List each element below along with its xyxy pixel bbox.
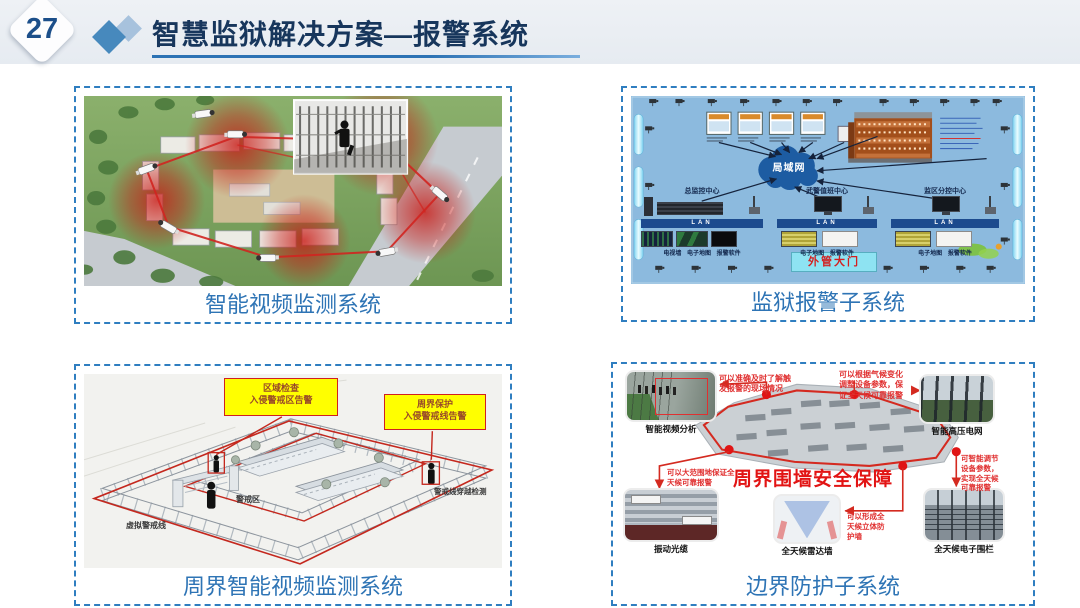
station-devices-label: 电子地图 报警软件	[889, 248, 1001, 257]
monitor-icon	[711, 231, 737, 247]
perimeter-wireframe-illustration: 区域检查 入侵警戒区告警 周界保护 入侵警戒线告警 虚拟警戒线 警戒区 警戒线穿…	[84, 374, 502, 568]
label-chip	[682, 516, 712, 525]
radar-edge	[827, 520, 837, 539]
photo-radar-wall	[775, 496, 839, 542]
prison-aerial-art	[84, 96, 502, 286]
station-hardware	[775, 194, 879, 217]
station-main-control: 总监控中心 LAN 电视墙 电子地图 报警软件	[639, 186, 765, 258]
station-devices-label: 电视墙 电子地图 报警软件	[639, 248, 765, 257]
alert-zone-label: 警戒区	[236, 494, 260, 505]
prison-aerial-illustration	[84, 96, 502, 286]
lan-bus: LAN	[641, 219, 763, 228]
e-map-screen-icon	[781, 231, 817, 247]
virtual-line-label: 虚拟警戒线	[126, 520, 166, 531]
analysis-detection-box	[655, 378, 708, 416]
e-map-screen-icon	[895, 231, 931, 247]
note-scene: 可以准确及时了解触 发报警的现场情况	[719, 374, 799, 395]
tv-wall-icon	[641, 231, 673, 247]
antenna-icon	[989, 196, 991, 207]
intruder-figure	[214, 455, 219, 472]
label-chip	[631, 495, 661, 504]
alarm-host-rack-icon	[657, 202, 723, 215]
slide-header: 27 智慧监狱解决方案—报警系统	[0, 0, 1080, 64]
panel-perimeter-video: 区域检查 入侵警戒区告警 周界保护 入侵警戒线告警 虚拟警戒线 警戒区 警戒线穿…	[74, 364, 512, 606]
panel-boundary-protection: 智能视频分析 智能高压电网 振动光缆 全天候雷达墙	[611, 362, 1035, 606]
panel-caption: 监狱报警子系统	[623, 285, 1033, 317]
hv-grid-posts	[921, 376, 993, 422]
cell-block-building	[848, 112, 932, 163]
station-screens	[891, 231, 999, 246]
antenna-icon	[753, 196, 755, 207]
page-number: 27	[17, 13, 67, 46]
photo-label: 智能高压电网	[915, 425, 999, 437]
title-underline	[152, 55, 580, 58]
antenna-icon	[867, 196, 869, 207]
station-screens	[641, 231, 763, 246]
e-map-screen-icon	[676, 231, 708, 247]
station-hardware	[639, 194, 765, 217]
note-wall: 可以形成全 天候立体防 护墙	[847, 512, 895, 541]
radar-edge	[777, 520, 787, 539]
antenna-base-icon	[985, 207, 996, 214]
station-devices-label: 电子地图 报警软件	[775, 248, 879, 257]
callout-area-check: 区域检查 入侵警戒区告警	[224, 378, 338, 416]
station-hardware	[889, 194, 1001, 217]
antenna-base-icon	[863, 207, 874, 214]
photo-hv-grid	[921, 376, 993, 422]
radar-cone	[784, 501, 830, 539]
photo-label: 全天候电子围栏	[917, 543, 1011, 555]
photo-label: 智能视频分析	[627, 423, 715, 435]
alarm-software-screen-icon	[936, 231, 972, 247]
slide: 27 智慧监狱解决方案—报警系统	[0, 0, 1080, 608]
antenna-base-icon	[749, 207, 760, 214]
detected-people	[638, 385, 641, 393]
lan-bus: LAN	[891, 219, 999, 228]
note-climate: 可以根据气候变化 调整设备参数，保 证全天候可靠报警	[839, 370, 911, 401]
station-armed-police: 武警值班中心 LAN 电子地图 报警软件	[775, 186, 879, 258]
note-adjust: 可智能调节 设备参数， 实现全天候 可靠报警	[961, 454, 1019, 493]
panel-video-monitoring: 智能视频监测系统	[74, 86, 512, 324]
lan-bus: LAN	[777, 219, 877, 228]
lan-cloud-label: 局域网	[763, 159, 815, 174]
station-sub-control: 监区分控中心 LAN 电子地图 报警软件	[889, 186, 1001, 258]
fence-climber-inset	[294, 100, 407, 174]
photo-vibration-fiber	[625, 490, 717, 540]
photo-video-analysis	[627, 372, 715, 420]
ground-strip	[625, 525, 717, 540]
photo-electronic-fence	[925, 490, 1003, 540]
photo-label: 全天候雷达墙	[765, 545, 849, 557]
boundary-protection-illustration: 智能视频分析 智能高压电网 振动光缆 全天候雷达墙	[615, 368, 1031, 570]
note-range: 可以大范围地保证全 天候可靠报警	[667, 468, 745, 488]
line-crossing-label: 警戒线穿越检测	[434, 486, 494, 497]
workstation-icon	[932, 196, 960, 212]
panel-caption: 周界智能视频监测系统	[76, 569, 510, 601]
station-screens	[777, 231, 877, 246]
photo-label: 振动光缆	[625, 543, 717, 555]
panel-prison-alarm: 局域网 外管大门 总监控中心 LAN 电视墙 电子地图 报警软件	[621, 86, 1035, 322]
intruder-figure	[428, 463, 435, 484]
perimeter-security-headline: 周界围墙安全保障	[733, 464, 893, 491]
fence-posts	[925, 490, 1003, 540]
callout-perimeter-protect: 周界保护 入侵警戒线告警	[384, 394, 486, 430]
panel-caption: 边界防护子系统	[613, 569, 1033, 601]
panel-caption: 智能视频监测系统	[76, 287, 510, 319]
alarm-network-illustration: 局域网 外管大门 总监控中心 LAN 电视墙 电子地图 报警软件	[631, 96, 1025, 284]
intruder-figure	[207, 482, 215, 509]
server-tower-icon	[644, 197, 653, 216]
alarm-software-screen-icon	[822, 231, 858, 247]
workstation-icon	[814, 196, 842, 212]
slide-title: 智慧监狱解决方案—报警系统	[152, 13, 529, 53]
